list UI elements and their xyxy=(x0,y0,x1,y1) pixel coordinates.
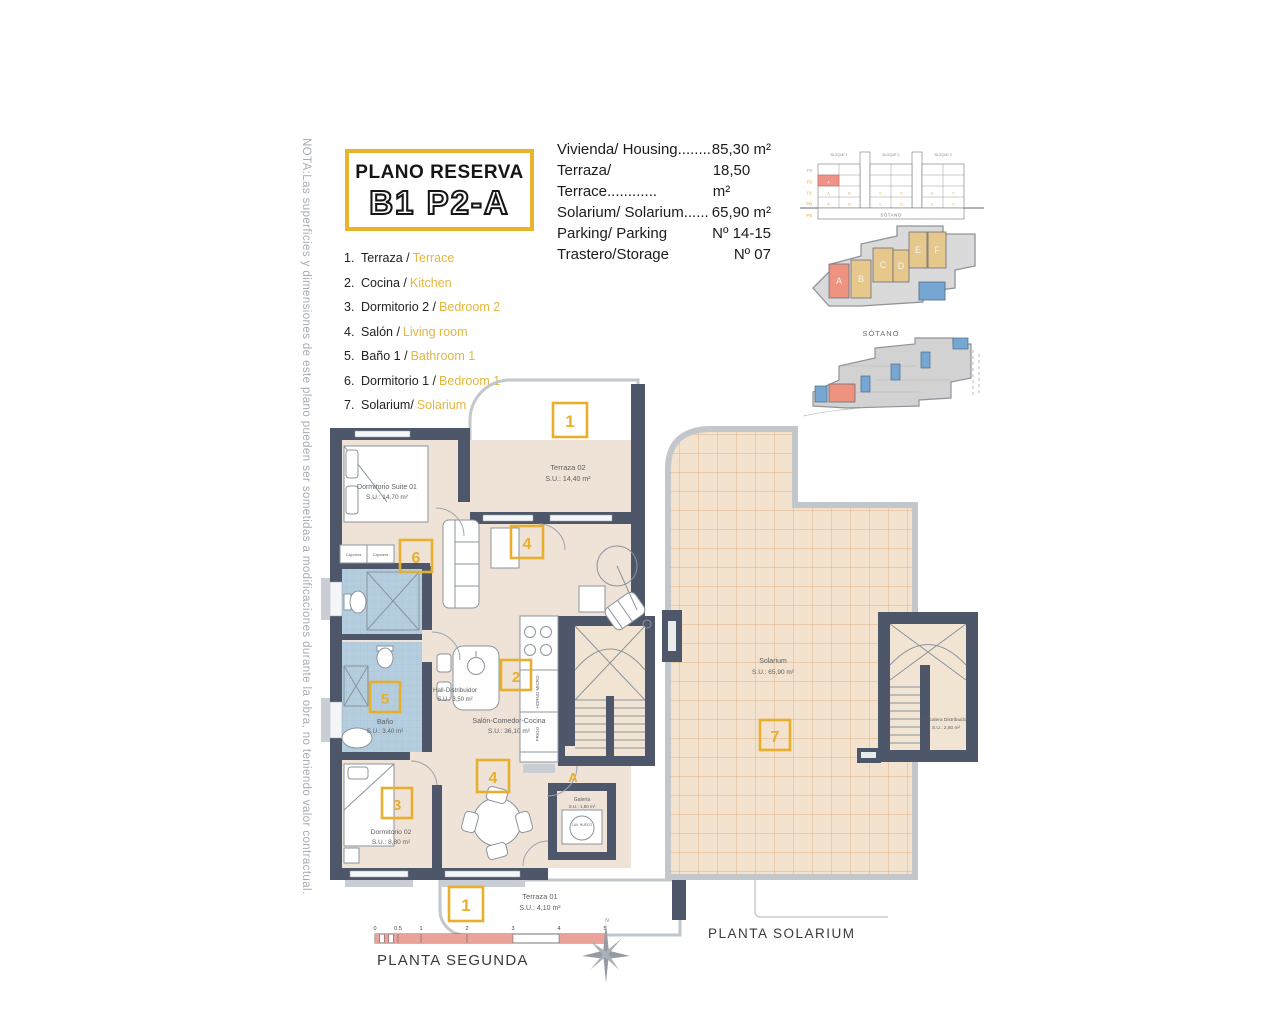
badge-salon-num: 4 xyxy=(489,770,498,787)
room-area: S.U.: 3,40 m² xyxy=(367,728,403,735)
scale-tick-label: 4 xyxy=(557,926,560,932)
solarium-deck xyxy=(668,429,915,877)
basement-stair xyxy=(891,364,900,380)
legend-item: 5.Baño 1 /Bathroom 1 xyxy=(344,349,500,363)
room-area: S.U.: 14,70 m² xyxy=(366,494,409,501)
room-label: Hall-Distribuidor xyxy=(433,687,477,694)
room-label: Baño xyxy=(377,719,393,726)
badge-terraza01-num: 1 xyxy=(461,896,470,915)
room-area: S.U.: 65,90 m² xyxy=(752,669,795,676)
surface-specs: Vivienda/ Housing........85,30 m² Terraz… xyxy=(557,139,771,265)
block-header: BLOQUE 2 xyxy=(883,153,900,157)
staircase xyxy=(575,626,645,756)
north-label: N xyxy=(605,918,609,924)
block-letter: A xyxy=(836,276,842,286)
block-letter: C xyxy=(880,260,887,270)
spec-value: 85,30 m² xyxy=(712,139,771,160)
block-header: BLOQUE 3 xyxy=(935,153,952,157)
scale-tick-label: 0.5 xyxy=(394,926,402,932)
spec-value: Nº 14-15 xyxy=(712,223,771,244)
plan-code: B1 P2-A xyxy=(349,184,530,222)
room-label: Galería xyxy=(574,797,591,803)
unit-cell-label: B xyxy=(848,203,850,207)
spec-row: Vivienda/ Housing........85,30 m² xyxy=(557,139,771,160)
basement-key-plan: SÓTANO xyxy=(803,320,988,420)
room-area: S.U.: 8,80 m² xyxy=(372,839,411,846)
badge-salon-num: 4 xyxy=(523,536,532,553)
floorplan-planta-solarium: Escalera Distribuidor S.U.: 2,60 m² Sola… xyxy=(660,415,990,920)
room-area: S.U.: 3,50 m² xyxy=(437,697,472,703)
scale-tick-label: 2 xyxy=(465,926,468,932)
floor-label: P3 xyxy=(807,168,813,173)
basement-stair xyxy=(921,352,930,368)
scale-tick-label: 3 xyxy=(511,926,514,932)
legend-item: 3.Dormitorio 2 /Bedroom 2 xyxy=(344,300,500,314)
room-area: S.U.: 36,10 m² xyxy=(488,728,531,735)
room-area: S.U.: 4,10 m² xyxy=(519,905,561,912)
room-label: Terraza 01 xyxy=(522,892,557,901)
block-letter: E xyxy=(915,245,921,255)
site-key-plan: A B C D E F xyxy=(805,218,985,318)
sotano-label: SÓTANO xyxy=(862,329,899,338)
scale-tick-label: 1 xyxy=(419,926,422,932)
basement-label: SÓTANO xyxy=(880,213,901,218)
tower-step-slot xyxy=(861,752,876,758)
caption-planta-solarium: PLANTA SOLARIUM xyxy=(708,926,856,941)
spec-row: Parking/ ParkingNº 14-15 xyxy=(557,223,771,244)
spec-label: Solarium/ Solarium...... xyxy=(557,202,709,223)
unit-cell-label: B xyxy=(848,192,850,196)
spec-value: 65,90 m² xyxy=(712,202,771,223)
block-letter: F xyxy=(934,245,940,255)
basement-stair xyxy=(815,386,827,402)
badge-cocina-num: 2 xyxy=(512,669,520,686)
chimney-flue xyxy=(668,621,676,651)
scale-tick-label: 0 xyxy=(373,926,376,932)
badge-terraza02-num: 1 xyxy=(565,412,574,431)
spec-row: Solarium/ Solarium......65,90 m² xyxy=(557,202,771,223)
elevation-tower xyxy=(818,164,964,208)
badge-dorm02-num: 3 xyxy=(393,797,401,814)
basement-storage-highlight xyxy=(829,384,855,402)
floor-label: P2 xyxy=(807,180,813,185)
badge-suite-num: 6 xyxy=(412,550,421,567)
room-galeria xyxy=(548,783,616,860)
cajonera-label: Cajonera xyxy=(346,553,362,557)
badge-bano-num: 5 xyxy=(381,691,389,708)
sideboard xyxy=(491,528,519,568)
room-label: Terraza 02 xyxy=(550,463,585,472)
room-label: Solarium xyxy=(759,658,787,665)
spec-row: Trastero/StorageNº 07 xyxy=(557,244,771,265)
unit-cell-label: E xyxy=(931,192,933,196)
spec-label: Vivienda/ Housing........ xyxy=(557,139,711,160)
unit-cell-label: F xyxy=(953,192,955,196)
caption-leader-line xyxy=(755,880,888,917)
spec-row: Terraza/ Terrace............18,50 m² xyxy=(557,160,771,202)
unit-cell-label: E xyxy=(931,203,933,207)
spec-label: Terraza/ Terrace............ xyxy=(557,160,713,202)
room-area: S.U.: 1,80 m² xyxy=(569,804,596,809)
title-box: PLANO RESERVA B1 P2-A xyxy=(345,149,534,231)
appliance-label-lavadora: LAV. HUECO xyxy=(572,823,592,827)
block-letter: D xyxy=(898,261,905,271)
room-area: S.U.: 2,60 m² xyxy=(932,725,961,731)
spec-value: Nº 07 xyxy=(734,244,771,265)
legend-item: 1.Terraza /Terrace xyxy=(344,251,500,265)
legend-item: 2.Cocina /Kitchen xyxy=(344,276,500,290)
block-header: BLOQUE 1 xyxy=(831,153,848,157)
entrance-door-letter: A xyxy=(568,770,578,785)
floorplan-planta-segunda: 1 Terraza 02 S.U.: 14,40 m² Dormitorio S… xyxy=(315,370,695,945)
sofa xyxy=(443,520,479,608)
stair-tower: Escalera Distribuidor S.U.: 2,60 m² xyxy=(878,612,978,762)
caption-planta-segunda: PLANTA SEGUNDA xyxy=(377,952,529,969)
pool-block xyxy=(919,282,945,300)
room-label: Dormitorio Suite 01 xyxy=(357,484,417,491)
appliance-label-frigo: FRIGO xyxy=(535,726,540,741)
appliance-label-horno: HORNO MICRO xyxy=(535,675,540,708)
room-area: S.U.: 14,40 m² xyxy=(545,476,591,483)
cajonera-label: Cajonera xyxy=(373,553,389,557)
vertical-note: NOTA:Las superficies y dimensiones de es… xyxy=(300,138,312,908)
room-label: Dormitorio 02 xyxy=(371,829,412,836)
spec-label: Parking/ Parking xyxy=(557,223,667,244)
basement-stair xyxy=(953,338,968,349)
unit-cell-label: F xyxy=(953,203,955,207)
north-compass: N xyxy=(578,915,634,987)
floor-label: P1 xyxy=(807,191,813,196)
badge-solarium-num: 7 xyxy=(771,729,780,746)
spec-value: 18,50 m² xyxy=(713,160,771,202)
block-letter: B xyxy=(858,274,864,284)
basement-stair xyxy=(861,376,870,392)
plano-reserva-sheet: NOTA:Las superficies y dimensiones de es… xyxy=(0,0,1280,1024)
room-label: Escalera Distribuidor xyxy=(924,717,969,723)
room-label: Salón-Comedor-Cocina xyxy=(472,718,545,725)
floor-label: PB xyxy=(806,202,812,207)
spec-label: Trastero/Storage xyxy=(557,244,669,265)
page-title: PLANO RESERVA xyxy=(349,162,530,184)
legend-item: 4.Salón /Living room xyxy=(344,325,500,339)
